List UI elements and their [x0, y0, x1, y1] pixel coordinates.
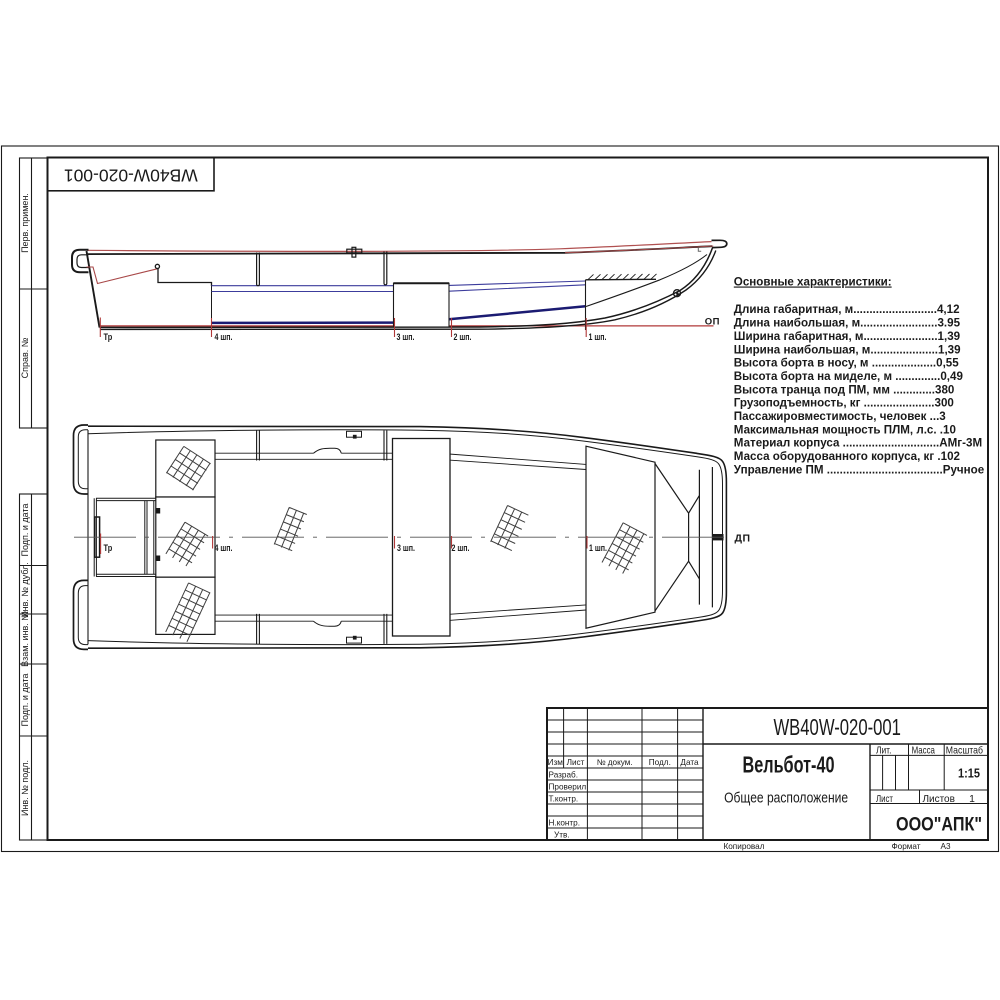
svg-text:Пассажировместимость, человек: Пассажировместимость, человек ...3 — [734, 410, 947, 423]
svg-text:Изм: Изм — [548, 758, 564, 767]
svg-text:WB40W-020-001: WB40W-020-001 — [64, 166, 198, 186]
svg-text:Инв. № дубл.: Инв. № дубл. — [20, 562, 30, 618]
svg-text:1 шп.: 1 шп. — [589, 543, 607, 553]
svg-text:Подп. и дата: Подп. и дата — [20, 673, 30, 726]
svg-text:ООО"АПК": ООО"АПК" — [896, 814, 982, 836]
svg-text:3 шп.: 3 шп. — [397, 332, 415, 342]
svg-text:Лист: Лист — [876, 794, 893, 805]
svg-text:Н.контр.: Н.контр. — [549, 819, 581, 828]
svg-text:Лит.: Лит. — [876, 745, 892, 756]
svg-text:Дата: Дата — [680, 758, 699, 767]
svg-text:4 шп.: 4 шп. — [215, 543, 233, 553]
svg-text:Утв.: Утв. — [554, 831, 570, 840]
svg-text:Грузоподъемность, кг .........: Грузоподъемность, кг ...................… — [734, 397, 954, 410]
svg-text:1: 1 — [969, 794, 975, 805]
svg-text:Высота транца под ПМ, мм .....: Высота транца под ПМ, мм .............38… — [734, 383, 955, 396]
svg-text:Проверил: Проверил — [549, 783, 587, 792]
svg-text:WB40W-020-001: WB40W-020-001 — [773, 714, 901, 740]
svg-text:Высота борта в носу, м .......: Высота борта в носу, м .................… — [734, 357, 959, 370]
svg-text:Формат: Формат — [891, 842, 920, 851]
svg-text:ОП: ОП — [705, 316, 720, 327]
svg-text:Подл.: Подл. — [649, 758, 671, 767]
svg-text:Взам. инв. №: Взам. инв. № — [20, 611, 30, 667]
svg-text:Масса оборудованного корпуса,: Масса оборудованного корпуса, кг .102 — [734, 450, 960, 463]
svg-text:Длина наибольшая, м...........: Длина наибольшая, м.....................… — [734, 317, 961, 330]
svg-text:Ширина наибольшая, м..........: Ширина наибольшая, м....................… — [734, 343, 961, 356]
svg-text:А3: А3 — [940, 842, 950, 851]
svg-text:Ширина габаритная, м..........: Ширина габаритная, м....................… — [734, 330, 961, 343]
svg-text:Тр: Тр — [104, 543, 113, 553]
svg-text:Тр: Тр — [104, 332, 113, 342]
svg-text:Управление ПМ ................: Управление ПМ ..........................… — [734, 463, 985, 476]
svg-text:1 шп.: 1 шп. — [589, 332, 607, 342]
svg-text:Основные характеристики:: Основные характеристики: — [734, 276, 892, 289]
svg-text:Масштаб: Масштаб — [946, 744, 983, 756]
svg-text:№ докум.: № докум. — [597, 758, 633, 767]
svg-text:Максимальная мощность ПЛМ, л.с: Максимальная мощность ПЛМ, л.с. .10 — [734, 423, 956, 436]
svg-text:Листов: Листов — [922, 794, 955, 805]
svg-text:Вельбот-40: Вельбот-40 — [743, 752, 835, 778]
svg-text:Длина габаритная, м...........: Длина габаритная, м.....................… — [734, 303, 960, 316]
svg-text:2 шп.: 2 шп. — [454, 332, 472, 342]
svg-text:1:15: 1:15 — [958, 766, 980, 780]
svg-text:Копировал: Копировал — [723, 842, 764, 851]
svg-text:2 шп.: 2 шп. — [452, 543, 470, 553]
svg-text:Инв. № подл.: Инв. № подл. — [20, 760, 30, 816]
svg-text:Лист: Лист — [567, 758, 585, 767]
svg-text:Подп. и дата: Подп. и дата — [20, 503, 30, 556]
svg-text:Масса: Масса — [912, 745, 935, 756]
svg-text:Т.контр.: Т.контр. — [549, 795, 579, 804]
svg-text:Общее расположение: Общее расположение — [724, 789, 848, 806]
svg-text:Справ. №: Справ. № — [20, 337, 30, 378]
svg-text:Перв. примен.: Перв. примен. — [20, 193, 30, 253]
svg-text:3 шп.: 3 шп. — [397, 543, 415, 553]
svg-text:4 шп.: 4 шп. — [215, 332, 233, 342]
svg-text:ДП: ДП — [735, 532, 751, 544]
svg-text:Материал корпуса .............: Материал корпуса .......................… — [734, 437, 982, 450]
svg-text:Высота борта на миделе, м ....: Высота борта на миделе, м ..............… — [734, 370, 964, 383]
svg-text:Разраб.: Разраб. — [549, 771, 578, 780]
